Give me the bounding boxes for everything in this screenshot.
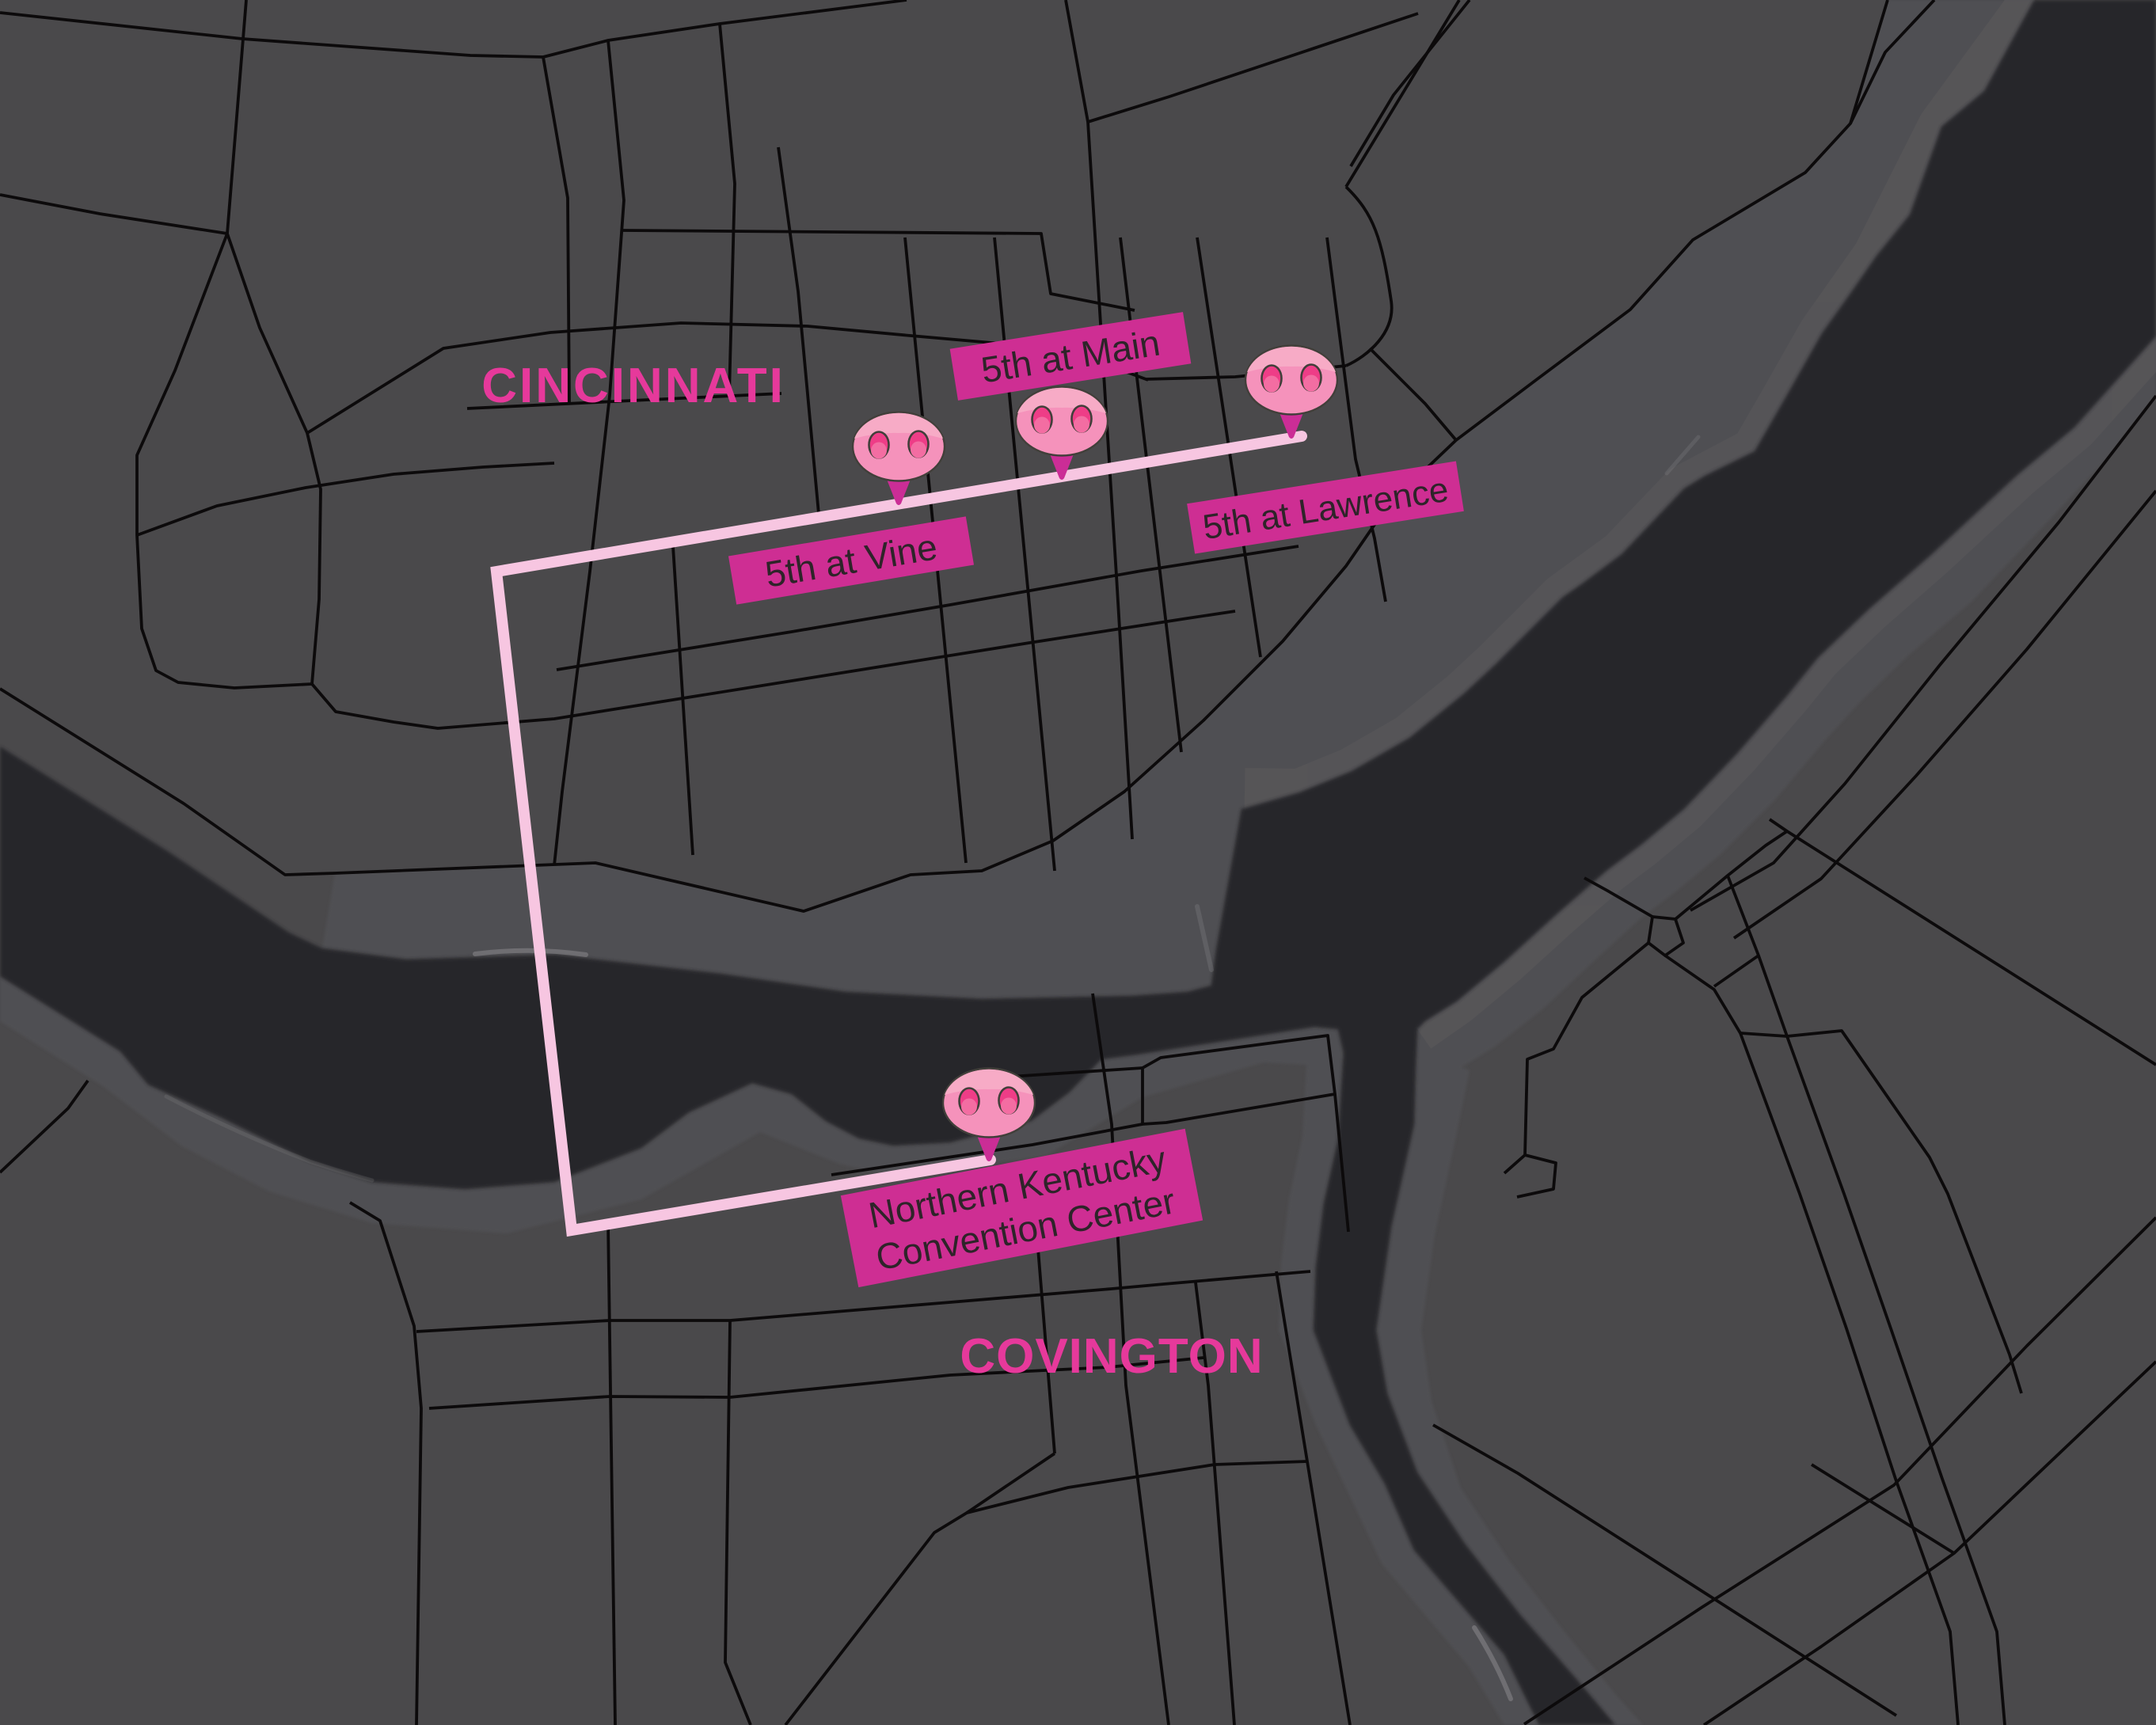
svg-text:COVINGTON: COVINGTON xyxy=(960,1329,1263,1384)
svg-text:CINCINNATI: CINCINNATI xyxy=(481,359,785,413)
